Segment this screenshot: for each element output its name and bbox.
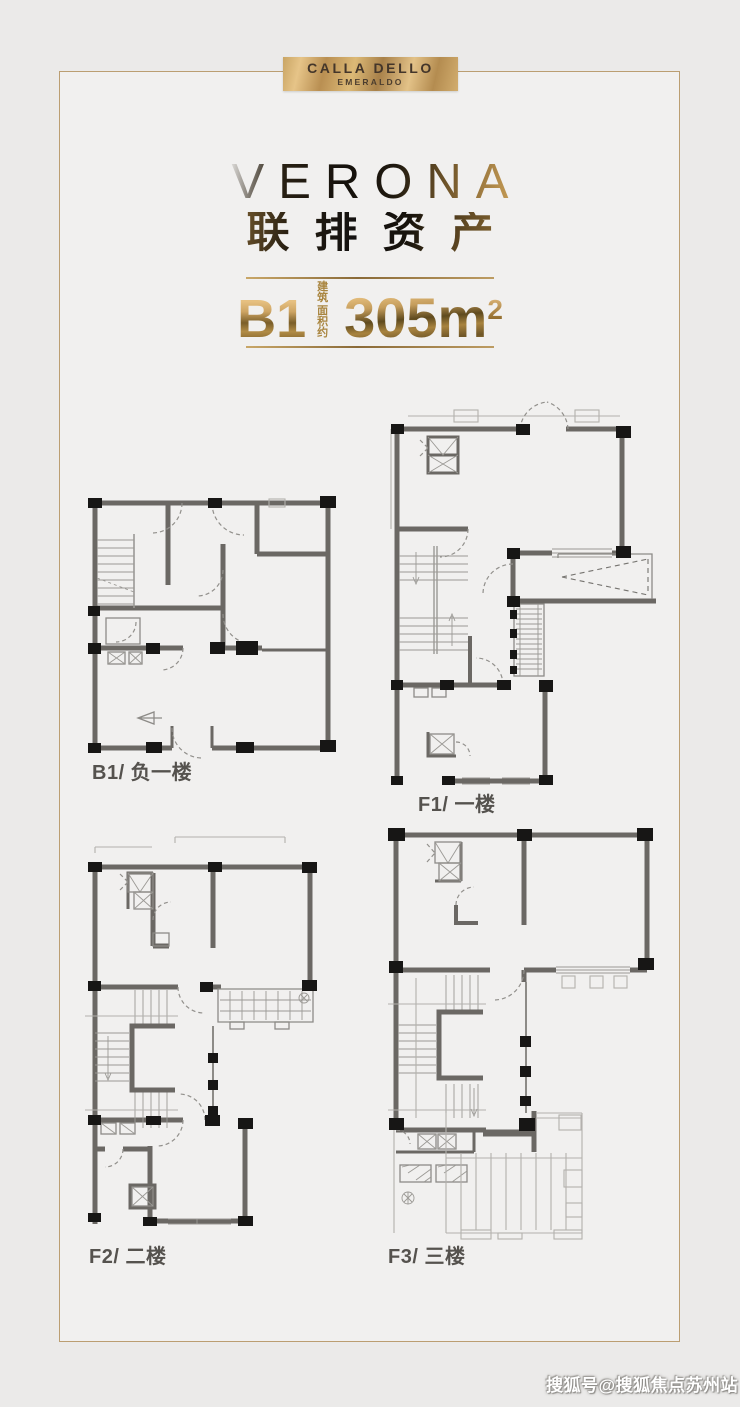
f1-shaft bbox=[420, 437, 458, 473]
f1-stairs bbox=[399, 546, 468, 654]
area-spec-row: B1 建 筑 面积约 305m2 bbox=[246, 279, 494, 346]
brand-name: CALLA DELLO bbox=[307, 61, 434, 75]
floorplan-f3-label: F3/ 三楼 bbox=[388, 1240, 465, 1269]
f3-mid-window bbox=[556, 967, 630, 973]
project-title: VERONA bbox=[218, 158, 523, 207]
b1-elevator bbox=[106, 618, 142, 664]
f2-stair-wall bbox=[132, 1026, 175, 1090]
area-superscript: 2 bbox=[487, 299, 503, 321]
floorplan-f2 bbox=[83, 828, 323, 1234]
f3-bath-top bbox=[456, 887, 478, 923]
floorplan-f1-label: F1/ 一楼 bbox=[418, 788, 495, 817]
f2-bath-top bbox=[153, 902, 171, 946]
floorplan-f1-drawing bbox=[390, 396, 664, 788]
f2-dimension-lines bbox=[95, 837, 285, 853]
b1-columns bbox=[88, 496, 336, 753]
floorplan-b1-label: B1/ 负一楼 bbox=[92, 756, 192, 785]
f1-ramp bbox=[558, 554, 652, 599]
floorplan-f2-drawing bbox=[83, 828, 323, 1234]
floorplan-f3 bbox=[386, 818, 668, 1240]
area-spec-block: B1 建 筑 面积约 305m2 bbox=[246, 277, 494, 348]
f1-grille bbox=[510, 604, 544, 676]
floorplan-b1 bbox=[86, 482, 338, 774]
f2-fixtures bbox=[101, 1123, 135, 1134]
brand-subname: EMERALDO bbox=[337, 78, 403, 87]
project-subtitle: 联排资产 bbox=[222, 212, 519, 255]
f1-top-window bbox=[552, 549, 612, 557]
f3-walls bbox=[396, 835, 647, 1130]
f2-door-arcs bbox=[105, 987, 205, 1167]
brand-plaque: CALLA DELLO EMERALDO bbox=[283, 57, 458, 91]
f3-shaft bbox=[427, 842, 461, 881]
floorplan-f1 bbox=[390, 396, 664, 788]
f2-walls bbox=[95, 867, 310, 1224]
b1-stairs bbox=[97, 534, 134, 608]
f3-planters bbox=[562, 976, 627, 988]
area-prefix-line2: 面积约 bbox=[317, 306, 333, 339]
f3-segmented-wall bbox=[520, 982, 531, 1113]
area-value: 305m2 bbox=[344, 296, 503, 342]
f2-balcony bbox=[218, 989, 313, 1029]
title-row-cn: 联排资产 bbox=[0, 212, 740, 255]
f1-lower-elevator bbox=[428, 732, 456, 756]
f1-walls bbox=[397, 429, 656, 781]
title-row-en: VERONA bbox=[0, 158, 740, 207]
area-prefix: 建 筑 面积约 bbox=[317, 282, 333, 339]
b1-symbols bbox=[138, 499, 285, 724]
f3-kitchen bbox=[400, 1165, 467, 1204]
f3-stair-wall bbox=[439, 1012, 483, 1078]
b1-minor-walls bbox=[172, 650, 328, 748]
unit-code: B1 bbox=[237, 298, 306, 342]
floorplan-b1-drawing bbox=[86, 482, 338, 774]
watermark: 搜狐号@搜狐焦点苏州站 bbox=[546, 1371, 738, 1396]
f2-shaft bbox=[120, 873, 153, 909]
floorplan-f2-label: F2/ 二楼 bbox=[89, 1240, 166, 1269]
poster-page: { "colors": { "accent_gold": "#bb9e72", … bbox=[0, 0, 740, 1407]
f1-door-arcs bbox=[440, 529, 513, 756]
f3-door-arc bbox=[494, 970, 524, 1000]
floorplan-f3-drawing bbox=[386, 818, 668, 1240]
area-prefix-line1: 建 筑 bbox=[317, 282, 333, 304]
f1-columns bbox=[391, 424, 631, 785]
f2-columns bbox=[88, 862, 317, 1226]
f2-segmented-wall bbox=[208, 1026, 218, 1120]
